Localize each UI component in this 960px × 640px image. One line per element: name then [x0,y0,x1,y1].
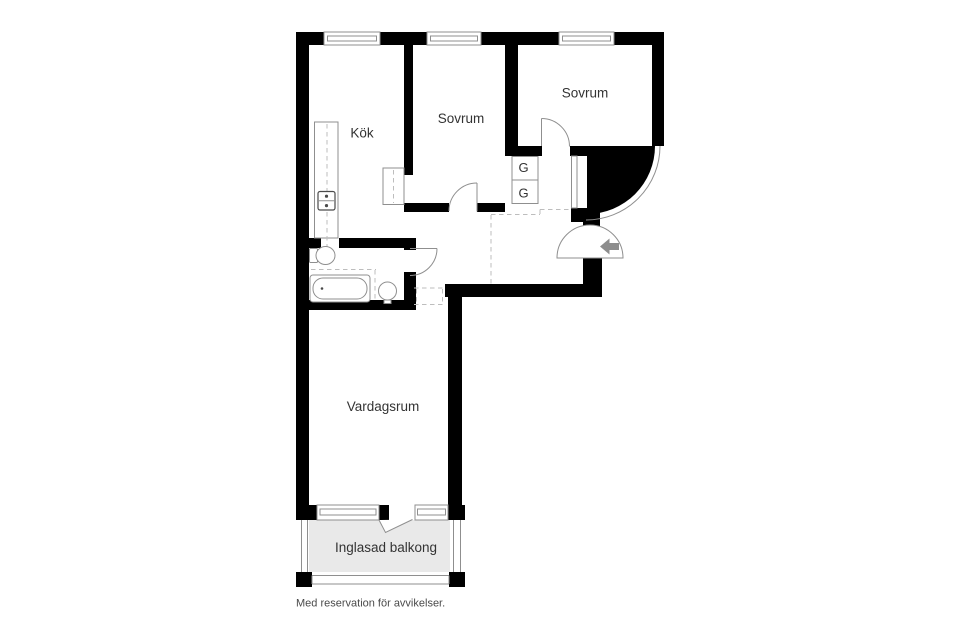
balcony-post-left [296,572,312,587]
refrigerator-icon [383,168,404,205]
wall-bathroom-top [296,238,405,248]
closets: G G [512,156,577,208]
bathroom-fixtures [310,247,397,304]
window-symbol [415,505,448,520]
entrance-door-arc [557,225,623,258]
wall-living-right [448,284,462,520]
stove-icon [318,192,335,211]
kitchen-counter [315,122,339,238]
closet-nook-partition [572,156,578,208]
bathtub-icon [310,275,370,302]
room-label-bedroom1: Sovrum [438,111,485,126]
wall-left [296,32,309,520]
entrance-door [557,225,623,258]
floor-plan: G G Kök Sovrum Sov [0,0,960,640]
wall-right [652,32,664,146]
balcony-post-right [449,572,465,587]
opening-bedroom2-door [542,146,570,156]
floor-plan-page: G G Kök Sovrum Sov [0,0,960,640]
wall-bedroom-divider [505,45,518,156]
opening-balcony-door [389,505,415,520]
window-symbol [317,505,379,520]
wall-hall-bottom [445,284,602,297]
room-label-balcony: Inglasad balkong [335,540,437,555]
wall-entry-lower [583,258,602,286]
room-label-kitchen: Kök [350,126,374,141]
closet-label: G [518,186,528,201]
kitchen-fixtures [315,122,405,250]
window-symbol [324,32,380,45]
wall-kitchen-divider [404,45,413,175]
toilet-icon [310,247,336,265]
room-label-living: Vardagsrum [347,399,420,414]
wall-curved-corner [587,146,655,214]
window-symbol [427,32,481,45]
door-swing-bathroom [410,249,437,276]
opening-bedroom1-door [449,203,477,212]
door-swing-bedroom2 [542,119,570,147]
window-symbol [559,32,614,45]
room-label-bedroom2: Sovrum [562,86,609,101]
closet-label: G [518,160,528,175]
footer-disclaimer: Med reservation för avvikelser. [296,598,445,610]
